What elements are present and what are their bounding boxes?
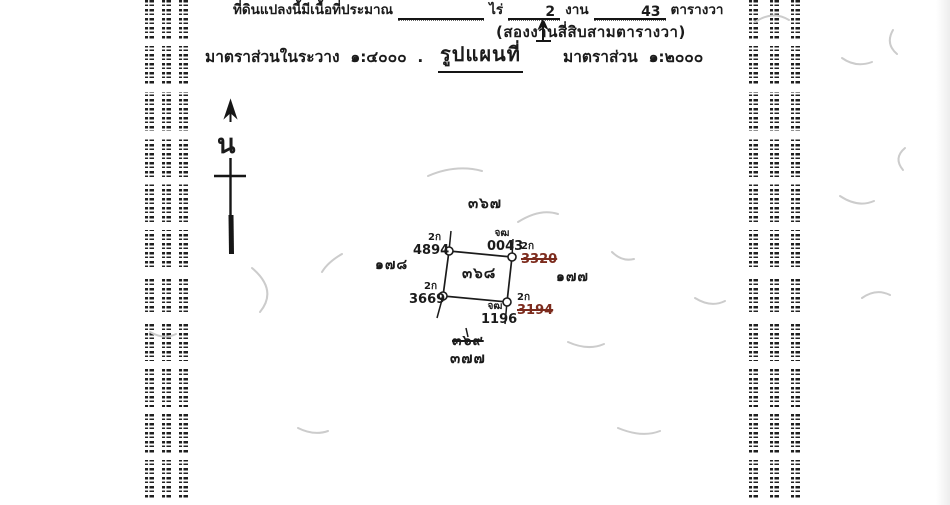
rai-label: ไร่	[489, 0, 503, 20]
marker-bottom-right-old-number: 3194	[517, 304, 553, 318]
sheet-scale: มาตราส่วนในระวาง ๑:๔๐๐๐ .	[205, 44, 423, 69]
adjacent-parcel-west: ๑๗๘	[375, 258, 408, 273]
map-scale: มาตราส่วน ๑:๒๐๐๐	[563, 44, 703, 69]
sheet-scale-value: ๑:๔๐๐๐	[350, 48, 406, 66]
sheet-scale-suffix: .	[417, 48, 423, 66]
parcel-number-center: ๓๖๘	[462, 266, 496, 282]
marker-top-right-old-code: 2ก	[521, 242, 557, 253]
wa-blank: 43	[594, 5, 666, 20]
marker-top-left: 2ก 4894	[413, 233, 441, 257]
north-letter: น	[217, 122, 235, 165]
adjacent-parcel-south-old: ๓๖๙	[452, 334, 484, 349]
area-in-words: (สองงานสี่สิบสามตารางวา)	[496, 20, 686, 44]
map-scale-label: มาตราส่วน	[563, 48, 638, 66]
marker-bottom-right-old-code: 2ก	[517, 293, 553, 304]
marker-top-right-old-number: 3320	[521, 253, 557, 267]
north-arrow-stem-thick	[231, 215, 232, 254]
ngan-blank: 2	[508, 5, 560, 20]
scanned-land-deed-map-page: { "colors": { "ink": "#1b1b1b", "strike_…	[0, 0, 950, 505]
area-prefix-text: ที่ดินแปลงนี้มีเนื้อที่ประมาณ	[233, 0, 393, 20]
marker-bottom-left-code: 2ก	[409, 282, 437, 293]
marker-top-right-boundary-code: จฒ	[487, 229, 517, 240]
adjacent-parcel-east: ๑๗๗	[556, 270, 589, 285]
marker-bottom-left-number: 3669	[409, 293, 437, 307]
sheet-scale-label: มาตราส่วนในระวาง	[205, 48, 340, 66]
marker-top-right-boundary-number: 0043	[487, 240, 517, 254]
wa-handwritten-value: 43	[641, 4, 660, 20]
marker-bottom-right-boundary: จฒ 1196	[481, 302, 509, 326]
map-drawing-layer	[0, 0, 950, 505]
marker-top-right-boundary: จฒ 0043	[487, 229, 517, 253]
ngan-label: งาน	[565, 0, 588, 20]
map-scale-value: ๑:๒๐๐๐	[649, 48, 704, 66]
marker-top-left-code: 2ก	[413, 233, 441, 244]
marker-bottom-right-boundary-code: จฒ	[481, 302, 509, 313]
boundary-marker-circle-tr	[508, 253, 516, 261]
marker-bottom-right-boundary-number: 1196	[481, 313, 509, 327]
marker-bottom-right-old: 2ก 3194	[517, 293, 553, 317]
map-figure-title: รูปแผนที่	[438, 38, 523, 73]
land-area-line: ที่ดินแปลงนี้มีเนื้อที่ประมาณ ไร่ 2 งาน …	[233, 0, 723, 20]
adjacent-parcel-south: ๓๗๗	[450, 351, 486, 367]
adjacent-parcel-north: ๓๖๗	[468, 196, 502, 212]
rai-blank	[398, 5, 484, 20]
wa-label: ตารางวา	[671, 0, 724, 20]
ngan-handwritten-value: 2	[545, 4, 555, 20]
marker-top-left-number: 4894	[413, 244, 441, 258]
scan-squiggles	[150, 15, 905, 433]
marker-bottom-left: 2ก 3669	[409, 282, 437, 306]
marker-top-right-old: 2ก 3320	[521, 242, 557, 266]
